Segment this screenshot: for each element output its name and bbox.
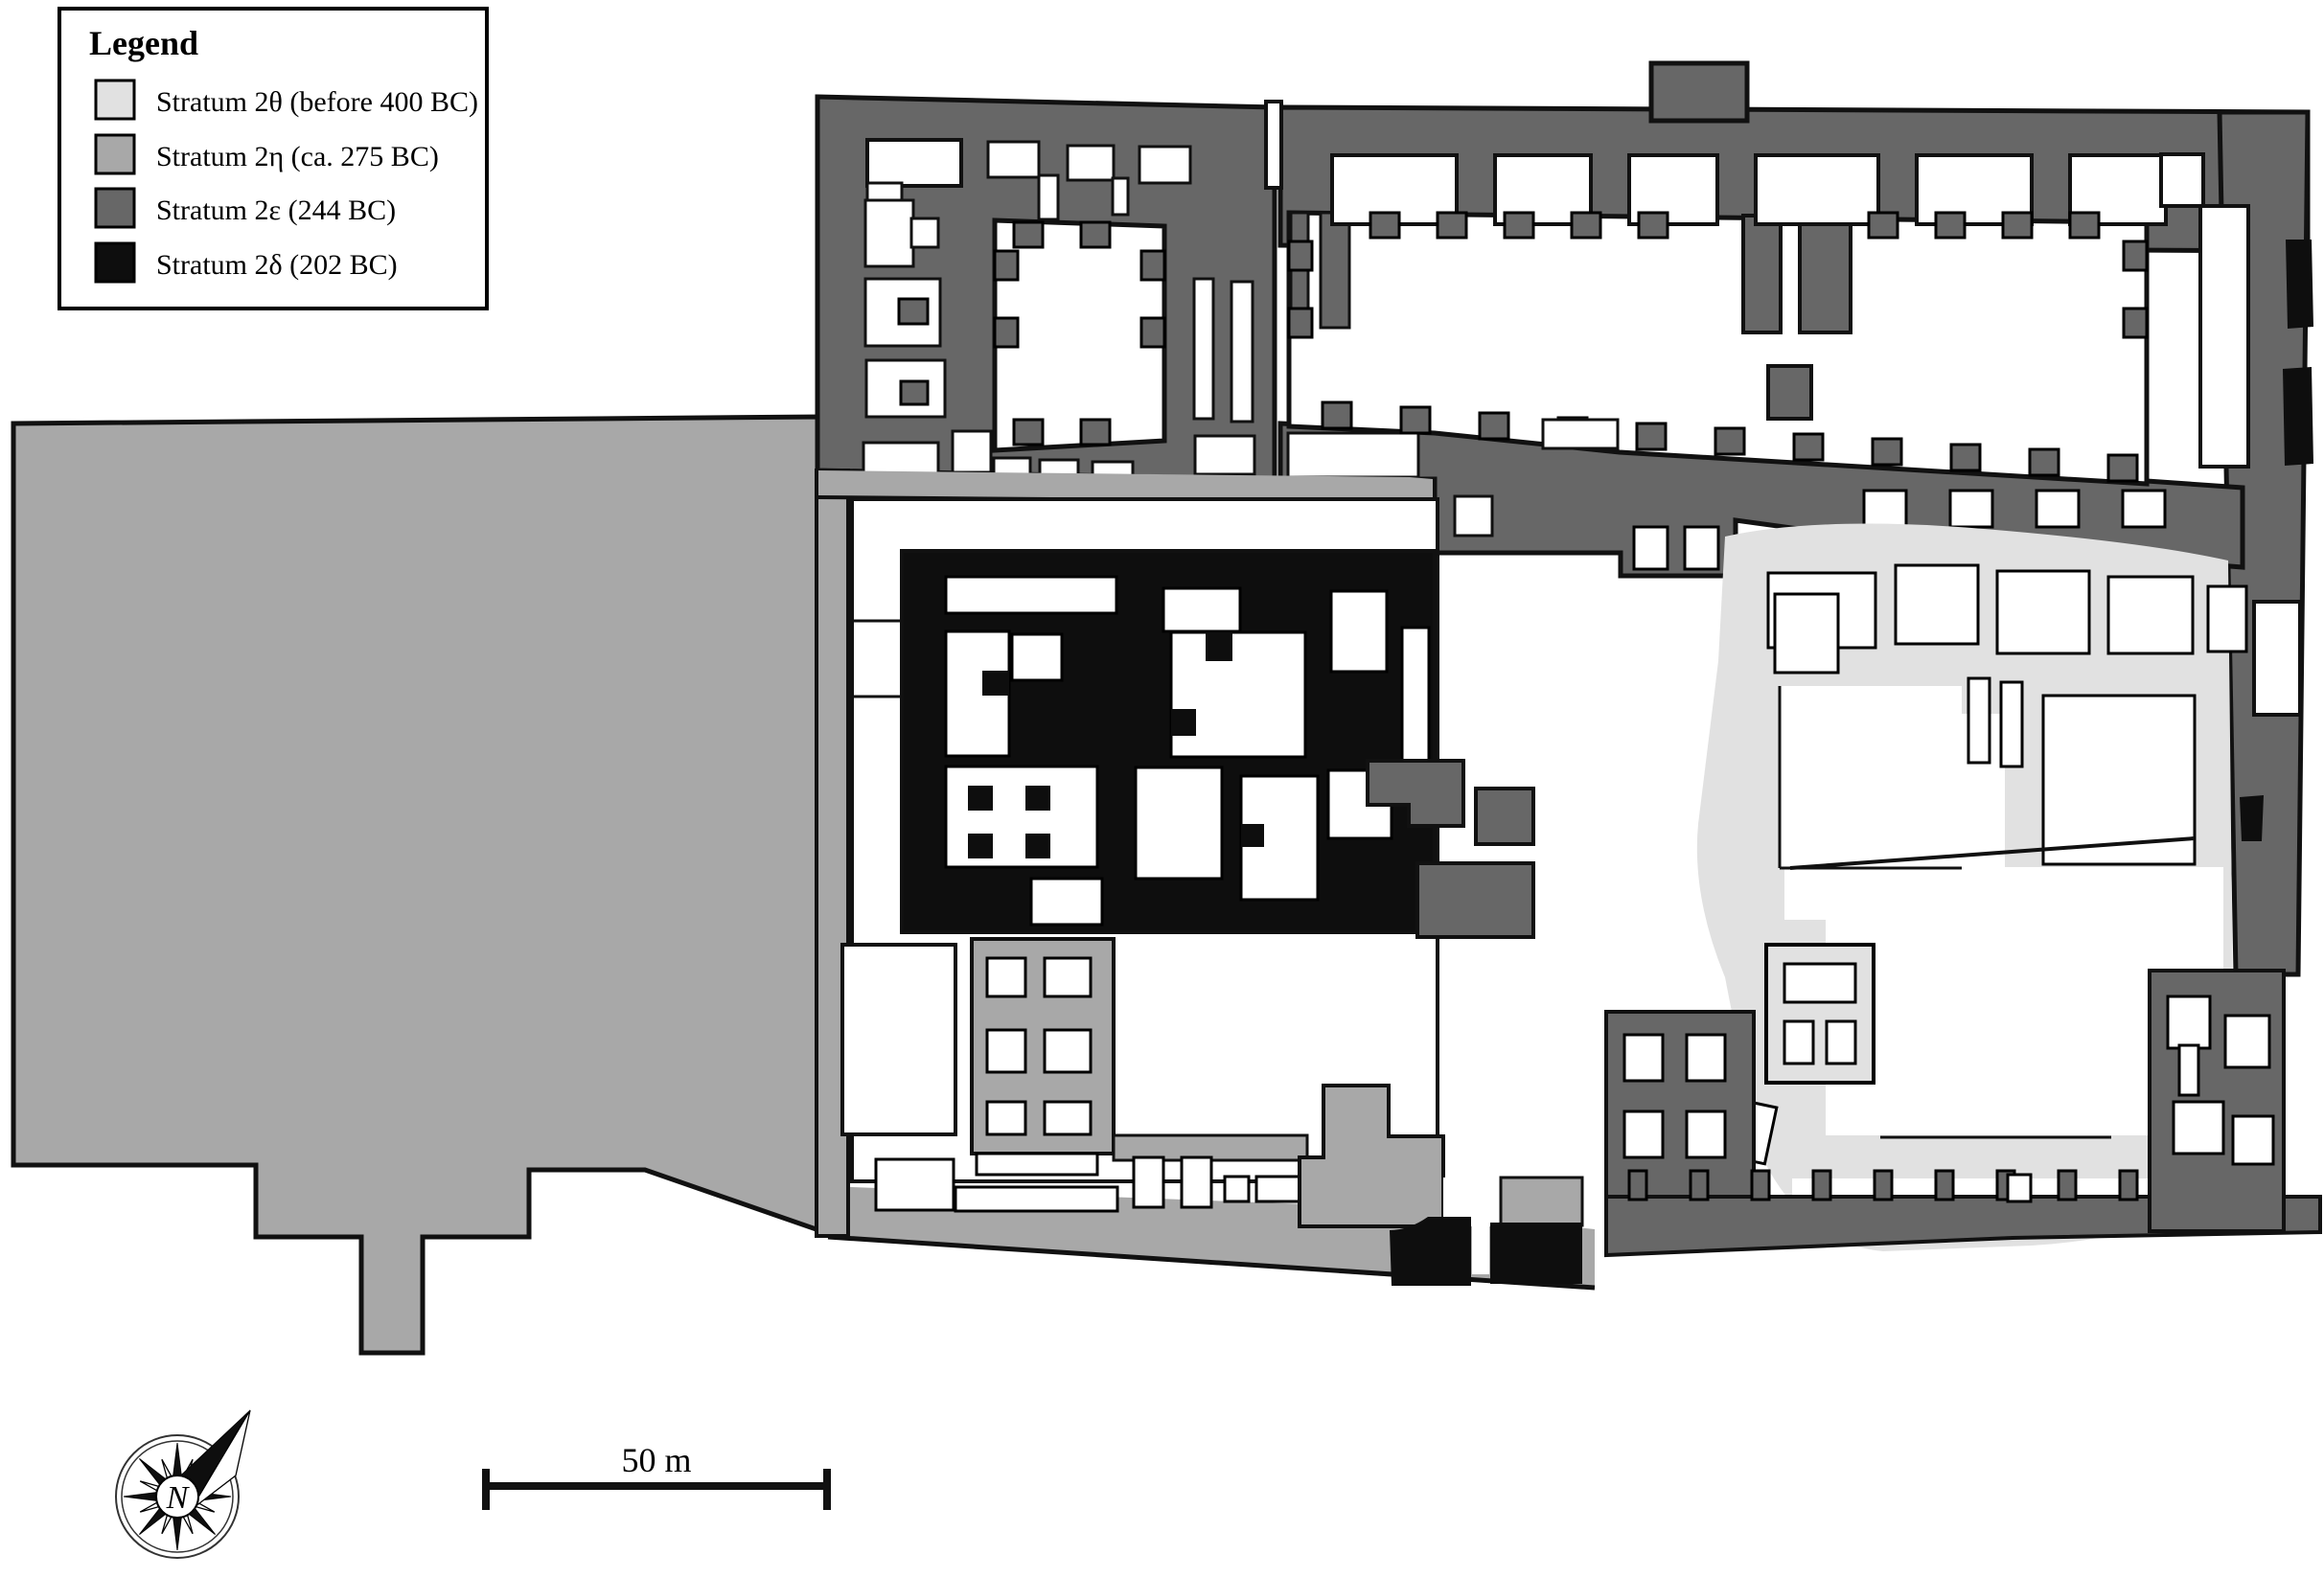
svg-text:Stratum 2θ (before 400 BC): Stratum 2θ (before 400 BC) <box>156 86 478 118</box>
svg-text:50 m: 50 m <box>621 1441 691 1479</box>
svg-text:N: N <box>166 1480 191 1516</box>
svg-text:Stratum 2ε (244 BC): Stratum 2ε (244 BC) <box>156 194 396 226</box>
svg-text:Stratum 2η (ca. 275 BC): Stratum 2η (ca. 275 BC) <box>156 141 439 172</box>
svg-text:Legend: Legend <box>89 24 198 62</box>
svg-text:Stratum 2δ (202 BC): Stratum 2δ (202 BC) <box>156 249 398 281</box>
